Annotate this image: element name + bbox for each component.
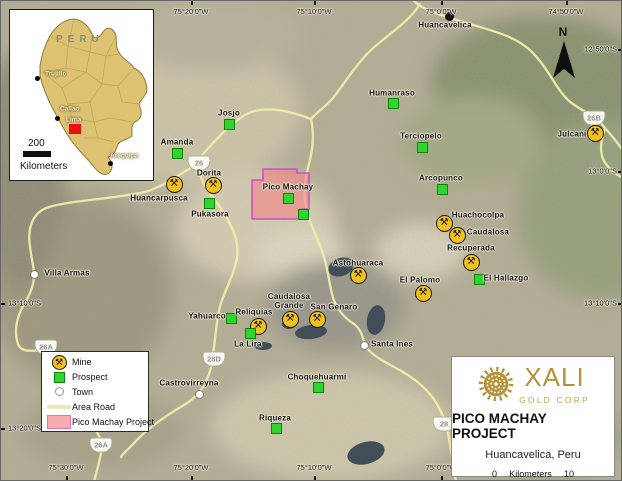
legend-item: Pico Machay Project xyxy=(46,414,144,429)
coordinate-label: 75°10'0"W xyxy=(296,463,331,472)
mine-marker: ⚒ xyxy=(415,285,432,302)
tick-mark xyxy=(566,1,568,5)
legend-label: Area Road xyxy=(72,402,115,412)
prospect-marker xyxy=(388,98,399,109)
town-marker xyxy=(195,390,204,399)
coordinate-label: 75°20'0"W xyxy=(173,7,208,16)
north-label: N xyxy=(559,25,568,39)
tick-mark xyxy=(1,303,5,305)
inset-city-label: Arequipa xyxy=(110,153,138,160)
prospect-marker xyxy=(204,198,215,209)
project-legend-icon xyxy=(47,415,71,429)
legend-item: ⚒Mine xyxy=(46,355,144,370)
title-block: XALI GOLD CORP PICO MACHAY PROJECT Huanc… xyxy=(451,356,615,477)
mine-marker: ⚒ xyxy=(309,311,326,328)
mine-label: Caudalosa xyxy=(467,228,509,237)
inset-city-dot xyxy=(55,116,60,121)
prospect-marker xyxy=(245,328,256,339)
inset-scale-bar xyxy=(23,151,51,157)
tick-mark xyxy=(618,49,622,51)
town-label: Huancavelica xyxy=(418,21,472,30)
tick-mark xyxy=(191,1,193,5)
mine-marker: ⚒ xyxy=(587,125,604,142)
project-location-marker xyxy=(69,124,81,134)
prospect-marker xyxy=(298,209,309,220)
prospect-label: Arcopunco xyxy=(419,174,463,183)
tick-mark xyxy=(618,171,622,173)
tick-mark xyxy=(441,476,443,480)
tick-mark xyxy=(618,303,622,305)
inset-city-dot xyxy=(35,76,40,81)
prospect-marker xyxy=(271,423,282,434)
mine-label: Huancarpusca xyxy=(130,194,188,203)
prospect-label: El Hallazgo xyxy=(484,274,529,283)
tick-mark xyxy=(314,476,316,480)
coordinate-label: 74°50'0"W xyxy=(548,7,583,16)
prospect-label: Choquehuarmi xyxy=(288,373,347,382)
inset-city-label: Trujillo xyxy=(45,71,66,78)
prospect-legend-icon xyxy=(54,372,65,383)
coordinate-label: 13°10'0"S xyxy=(8,299,41,308)
legend-item: Prospect xyxy=(46,370,144,385)
scale-start: 0 xyxy=(492,469,497,479)
mine-label: Julcani xyxy=(558,130,587,139)
prospect-marker xyxy=(313,382,324,393)
tick-mark xyxy=(441,1,443,5)
mine-label: El Palomo xyxy=(400,276,440,285)
inset-city-label: Callao xyxy=(60,106,80,113)
town-marker xyxy=(360,341,369,350)
town-legend-icon xyxy=(55,387,64,396)
road-shield: 26B xyxy=(583,111,606,126)
legend-icon-cell xyxy=(46,387,72,396)
mine-label: Recuperada xyxy=(447,244,495,253)
legend-label: Pico Machay Project xyxy=(72,417,154,427)
tick-mark xyxy=(1,428,5,430)
mine-label: Huachocolpa xyxy=(452,211,504,220)
prospect-marker xyxy=(224,119,235,130)
legend-item: Town xyxy=(46,385,144,400)
prospect-label: Humanraso xyxy=(369,89,415,98)
inset-city-dot xyxy=(108,161,113,166)
mine-label: Reliquias xyxy=(235,308,272,317)
legend-label: Mine xyxy=(72,357,92,367)
town-marker xyxy=(30,270,39,279)
logo-row: XALI GOLD CORP xyxy=(476,362,590,405)
mine-label: Dorita xyxy=(197,169,221,178)
town-label: Santa Ines xyxy=(371,340,413,349)
wordmark: XALI GOLD CORP xyxy=(519,362,590,405)
coordinate-label: 12°50'0"S xyxy=(584,45,617,54)
scale-unit: Kilometers xyxy=(509,469,552,479)
mine-marker: ⚒ xyxy=(205,177,222,194)
prospect-marker xyxy=(417,142,428,153)
company-name: XALI xyxy=(524,362,584,393)
mine-marker: ⚒ xyxy=(282,311,299,328)
coordinate-label: 75°20'0"W xyxy=(173,463,208,472)
map-title: PICO MACHAY PROJECT xyxy=(452,411,614,441)
town-label: Castrovirreyna xyxy=(159,379,218,388)
road-legend-icon xyxy=(48,406,70,409)
coordinate-label: 13°0'0"S xyxy=(588,167,617,176)
road-shield: 28D xyxy=(203,352,226,367)
prospect-label: Terciopelo xyxy=(400,132,442,141)
tick-mark xyxy=(66,476,68,480)
prospect-marker xyxy=(437,184,448,195)
prospect-label: Pico Machay xyxy=(263,183,314,192)
coordinate-label: 13°20'0"S xyxy=(8,424,41,433)
prospect-label: Josjo xyxy=(218,109,240,118)
map-figure: N ⚒Huancarpusca⚒Dorita⚒Julcani⚒Huachocol… xyxy=(0,0,622,481)
mine-marker: ⚒ xyxy=(436,215,453,232)
prospect-marker xyxy=(283,193,294,204)
legend-label: Town xyxy=(72,387,93,397)
peru-inset-map: PERU TrujilloCallaoLimaArequipa 200 Kilo… xyxy=(9,9,154,181)
legend: ⚒MineProspectTownArea RoadPico Machay Pr… xyxy=(41,351,149,432)
road-shield: 26A xyxy=(90,438,113,453)
inset-scale-unit: Kilometers xyxy=(20,161,67,172)
mine-label: San Genaro xyxy=(311,303,358,312)
mine-marker: ⚒ xyxy=(449,227,466,244)
prospect-label: Pukasora xyxy=(191,210,229,219)
inset-city-label: Lima xyxy=(66,117,81,124)
legend-icon-cell xyxy=(46,415,72,429)
tick-mark xyxy=(314,1,316,5)
prospect-label: Riqueza xyxy=(259,414,291,423)
map-subtitle: Huancavelica, Peru xyxy=(485,449,580,461)
prospect-label: La Lira xyxy=(234,340,262,349)
legend-icon-cell xyxy=(46,372,72,383)
prospect-label: Yahuarco xyxy=(188,312,226,321)
mine-marker: ⚒ xyxy=(166,176,183,193)
legend-icon-cell: ⚒ xyxy=(46,355,72,370)
country-label: PERU xyxy=(56,34,104,45)
mine-marker: ⚒ xyxy=(463,254,480,271)
tick-mark xyxy=(191,476,193,480)
legend-label: Prospect xyxy=(72,372,108,382)
prospect-marker xyxy=(172,148,183,159)
scale-end: 10 xyxy=(564,469,574,479)
coordinate-label: 75°0'0"W xyxy=(426,7,457,16)
scale-box: 0 Kilometers 10 xyxy=(492,469,574,481)
legend-item: Area Road xyxy=(46,399,144,414)
company-division: GOLD CORP xyxy=(519,395,590,405)
inset-scale-value: 200 xyxy=(28,138,45,149)
mine-marker: ⚒ xyxy=(350,267,367,284)
town-label: Villa Armas xyxy=(44,269,89,278)
coordinate-label: 75°10'0"W xyxy=(296,7,331,16)
coordinate-label: 75°30'0"W xyxy=(48,463,83,472)
prospect-label: Amanda xyxy=(161,138,194,147)
xali-logo-icon xyxy=(476,364,516,404)
mine-label: Astohuaraca xyxy=(333,259,384,268)
coordinate-label: 13°10'0"S xyxy=(584,299,617,308)
legend-icon-cell xyxy=(46,406,72,409)
mine-legend-icon: ⚒ xyxy=(52,355,67,370)
